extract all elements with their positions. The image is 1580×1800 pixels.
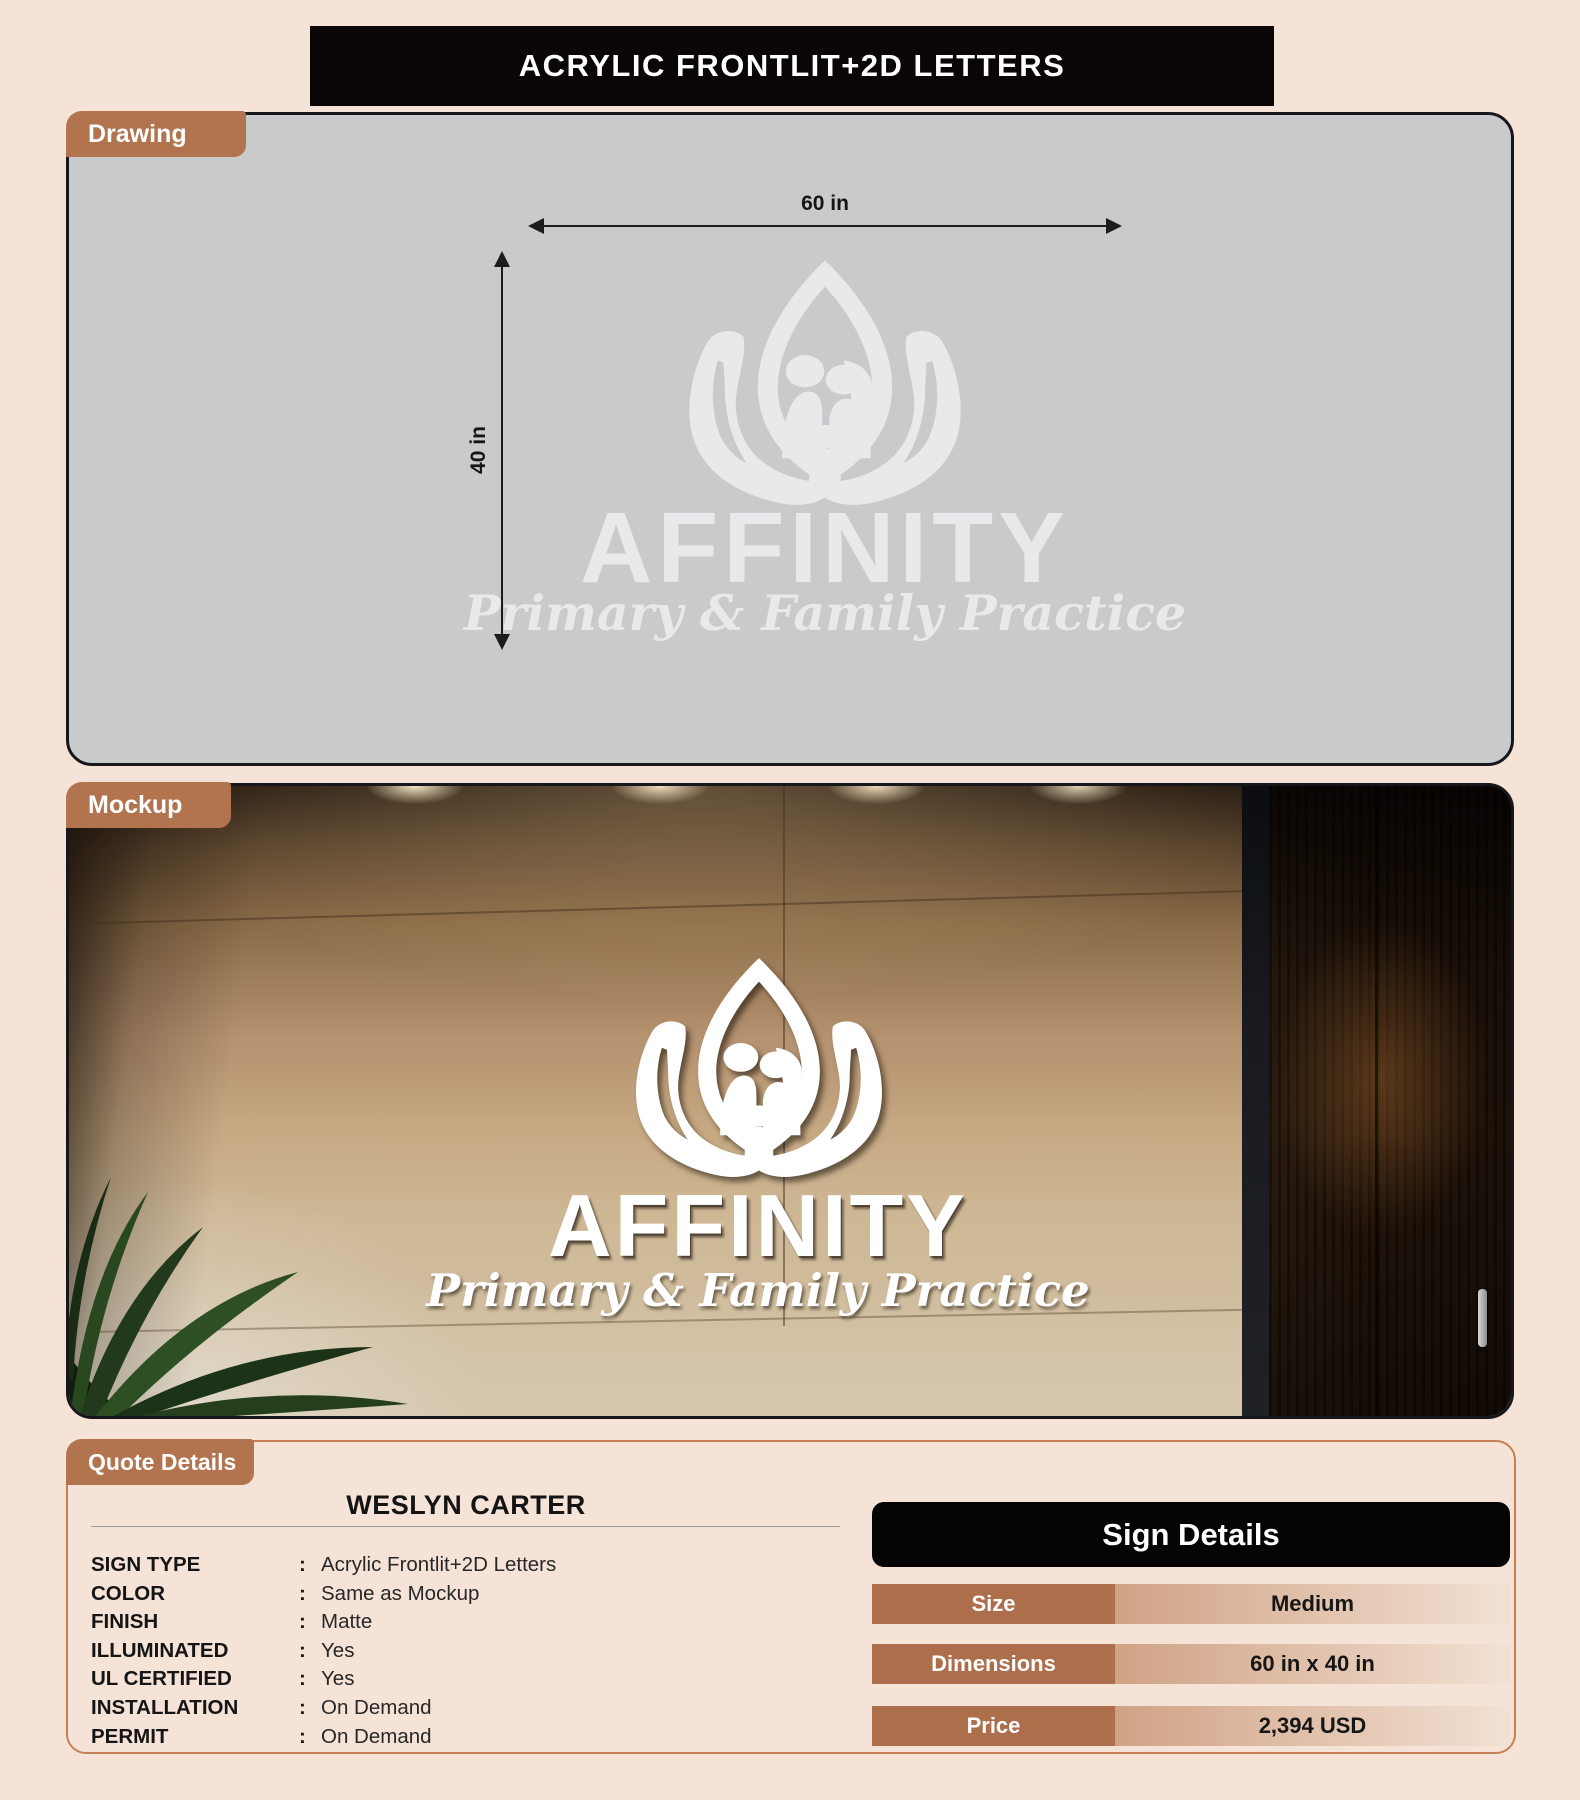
customer-divider [91,1526,840,1527]
drawing-logo-name: AFFINITY [375,498,1275,598]
spec-row: SIGN TYPE : Acrylic Frontlit+2D Letters [91,1551,791,1580]
quote-details-tab: Quote Details [66,1439,254,1485]
mockup-logo-name: AFFINITY [408,1182,1108,1270]
spec-value: On Demand [321,1723,791,1752]
spec-list: SIGN TYPE : Acrylic Frontlit+2D Letters … [91,1551,791,1751]
door-seam [1375,786,1378,1416]
spec-row: COLOR : Same as Mockup [91,1580,791,1609]
width-dimension-arrow-icon [542,225,1108,227]
spec-row: UL CERTIFIED : Yes [91,1665,791,1694]
spec-separator: : [299,1580,321,1609]
spec-label: SIGN TYPE [91,1551,299,1580]
width-dimension-label: 60 in [542,192,1108,216]
spec-label: INSTALLATION [91,1694,299,1723]
spec-label: ILLUMINATED [91,1637,299,1666]
mockup-logo-tagline: Primary & Family Practice [408,1264,1108,1317]
sign-quote-sheet: ACRYLIC FRONTLIT+2D LETTERS Drawing 60 i… [0,0,1580,1800]
spec-value: Same as Mockup [321,1580,791,1609]
drawing-logo-tagline: Primary & Family Practice [375,584,1275,642]
sign-type-banner: ACRYLIC FRONTLIT+2D LETTERS [310,26,1274,106]
drawing-section-tab: Drawing [66,111,246,157]
spec-value: Yes [321,1637,791,1666]
spec-value: Matte [321,1608,791,1637]
spec-separator: : [299,1608,321,1637]
spec-row: FINISH : Matte [91,1608,791,1637]
sign-details-row-value: Medium [1115,1584,1510,1624]
sign-details-row: Size Medium [872,1584,1510,1624]
sign-type-title: ACRYLIC FRONTLIT+2D LETTERS [519,48,1066,84]
spec-label: UL CERTIFIED [91,1665,299,1694]
spec-separator: : [299,1694,321,1723]
spec-label: FINISH [91,1608,299,1637]
spec-separator: : [299,1551,321,1580]
sign-details-row: Price 2,394 USD [872,1706,1510,1746]
spec-separator: : [299,1723,321,1752]
sign-details-row: Dimensions 60 in x 40 in [872,1644,1510,1684]
sign-details-row-label: Size [872,1584,1115,1624]
door-frame [1242,786,1269,1416]
mockup-tab-label: Mockup [88,791,182,819]
family-hands-emblem-icon [675,258,975,506]
family-hands-emblem-icon [623,956,895,1178]
height-dimension-label: 40 in [467,400,491,500]
spec-label: COLOR [91,1580,299,1609]
sign-details-row-label: Price [872,1706,1115,1746]
door-handle [1478,1289,1487,1347]
wood-door [1269,786,1514,1416]
quote-tab-label: Quote Details [88,1449,236,1475]
mockup-section-tab: Mockup [66,782,231,828]
spec-row: PERMIT : On Demand [91,1723,791,1752]
customer-name: WESLYN CARTER [91,1490,841,1521]
drawing-tab-label: Drawing [88,120,187,148]
spec-row: ILLUMINATED : Yes [91,1637,791,1666]
spec-value: On Demand [321,1694,791,1723]
sign-details-title: Sign Details [1102,1517,1279,1553]
spec-value: Acrylic Frontlit+2D Letters [321,1551,791,1580]
mockup-photo: AFFINITY Primary & Family Practice [66,783,1514,1419]
spec-value: Yes [321,1665,791,1694]
spec-row: INSTALLATION : On Demand [91,1694,791,1723]
spec-label: PERMIT [91,1723,299,1752]
sign-details-header: Sign Details [872,1502,1510,1567]
spec-separator: : [299,1637,321,1666]
sign-details-row-value: 60 in x 40 in [1115,1644,1510,1684]
spec-separator: : [299,1665,321,1694]
sign-details-row-value: 2,394 USD [1115,1706,1510,1746]
height-dimension-arrow-icon [501,265,503,636]
sign-details-row-label: Dimensions [872,1644,1115,1684]
